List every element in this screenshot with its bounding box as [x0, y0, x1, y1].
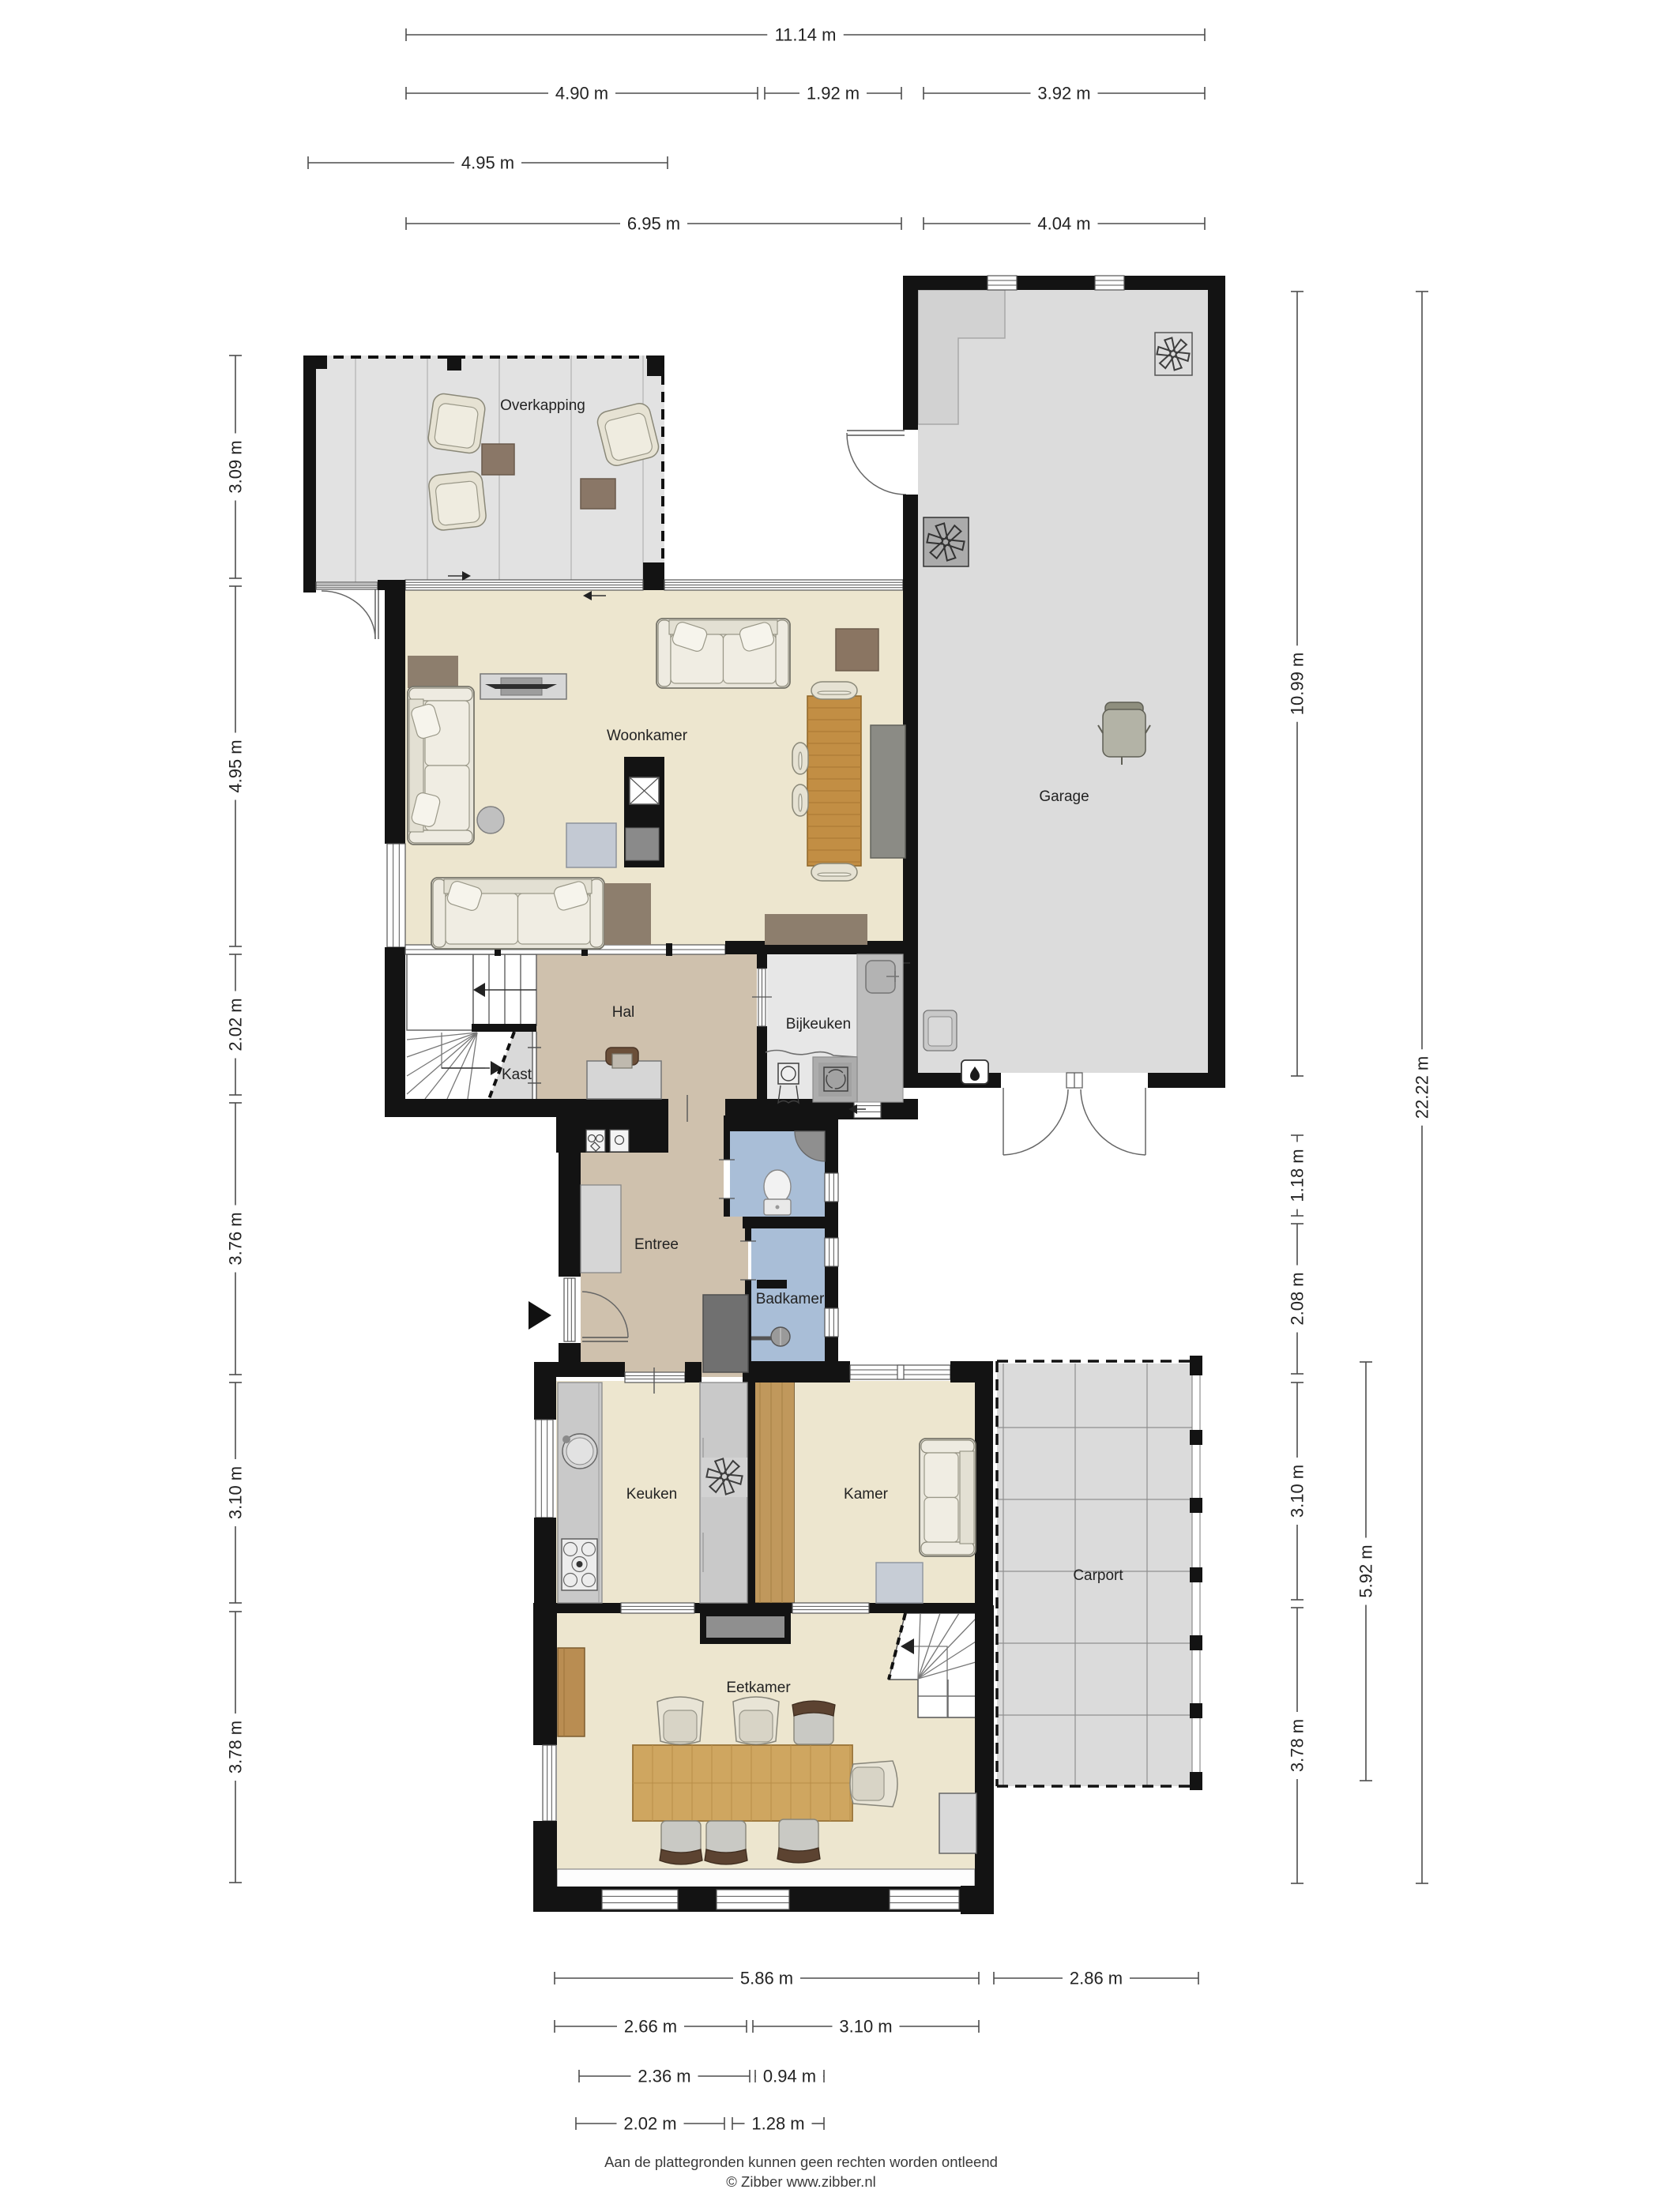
- svg-text:4.95 m: 4.95 m: [226, 739, 246, 792]
- svg-text:1.28 m: 1.28 m: [751, 2114, 804, 2134]
- svg-text:2.02 m: 2.02 m: [226, 998, 246, 1051]
- svg-text:1.92 m: 1.92 m: [807, 84, 860, 103]
- svg-text:3.92 m: 3.92 m: [1037, 84, 1090, 103]
- svg-text:2.36 m: 2.36 m: [638, 2067, 690, 2086]
- svg-text:3.10 m: 3.10 m: [1288, 1465, 1307, 1518]
- svg-text:10.99 m: 10.99 m: [1288, 653, 1307, 716]
- svg-text:6.95 m: 6.95 m: [627, 214, 680, 234]
- svg-text:Hal: Hal: [612, 1004, 635, 1021]
- svg-text:2.08 m: 2.08 m: [1288, 1272, 1307, 1325]
- svg-text:0.94 m: 0.94 m: [763, 2067, 816, 2086]
- svg-text:Kast: Kast: [502, 1066, 532, 1083]
- svg-text:2.02 m: 2.02 m: [623, 2114, 676, 2134]
- svg-text:2.86 m: 2.86 m: [1070, 1969, 1123, 1988]
- svg-text:3.76 m: 3.76 m: [226, 1212, 246, 1265]
- svg-text:3.09 m: 3.09 m: [226, 440, 246, 493]
- svg-text:5.86 m: 5.86 m: [740, 1969, 793, 1988]
- svg-text:Overkapping: Overkapping: [500, 397, 585, 414]
- svg-text:4.90 m: 4.90 m: [555, 84, 608, 103]
- svg-text:3.10 m: 3.10 m: [839, 2017, 892, 2037]
- svg-text:Badkamer: Badkamer: [756, 1291, 825, 1307]
- svg-text:Entree: Entree: [634, 1236, 679, 1253]
- svg-text:3.10 m: 3.10 m: [226, 1466, 246, 1519]
- svg-text:3.78 m: 3.78 m: [226, 1721, 246, 1774]
- svg-text:22.22 m: 22.22 m: [1413, 1056, 1432, 1119]
- svg-text:Kamer: Kamer: [844, 1486, 889, 1503]
- svg-text:Bijkeuken: Bijkeuken: [786, 1016, 851, 1033]
- svg-text:Eetkamer: Eetkamer: [726, 1680, 791, 1696]
- svg-text:2.66 m: 2.66 m: [624, 2017, 677, 2037]
- svg-text:4.95 m: 4.95 m: [461, 153, 514, 173]
- svg-text:3.78 m: 3.78 m: [1288, 1719, 1307, 1772]
- svg-text:4.04 m: 4.04 m: [1037, 214, 1090, 234]
- svg-text:5.92 m: 5.92 m: [1356, 1544, 1376, 1597]
- svg-text:1.18 m: 1.18 m: [1288, 1149, 1307, 1202]
- svg-text:11.14 m: 11.14 m: [775, 25, 837, 45]
- svg-text:Keuken: Keuken: [626, 1486, 677, 1503]
- svg-text:Carport: Carport: [1073, 1567, 1123, 1584]
- svg-text:© Zibber www.zibber.nl: © Zibber www.zibber.nl: [726, 2173, 875, 2190]
- svg-text:Woonkamer: Woonkamer: [607, 728, 688, 744]
- svg-text:Aan de plattegronden kunnen ge: Aan de plattegronden kunnen geen rechten…: [604, 2154, 998, 2170]
- svg-text:Garage: Garage: [1039, 788, 1089, 805]
